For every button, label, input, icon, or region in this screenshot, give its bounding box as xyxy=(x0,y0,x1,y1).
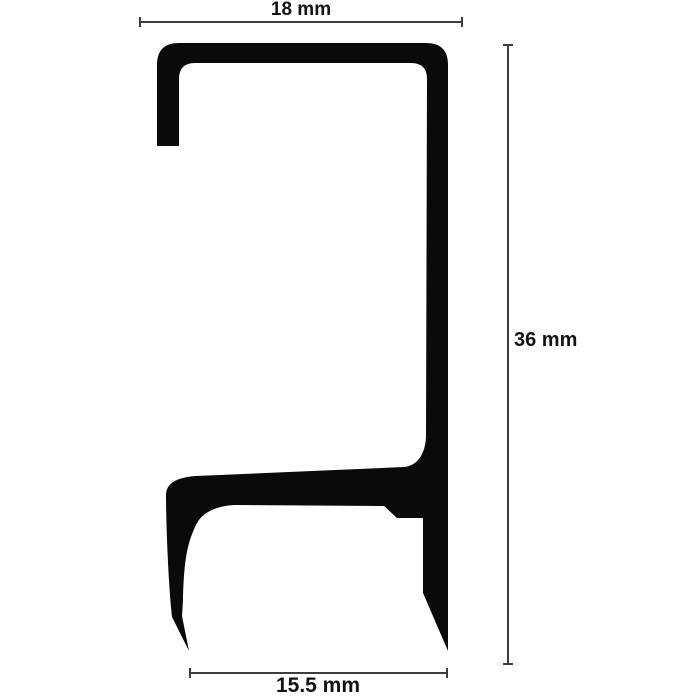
dimension-right-height xyxy=(503,45,513,664)
profile-diagram: 18 mm 36 mm 15.5 mm xyxy=(0,0,700,700)
dimension-label-top-width: 18 mm xyxy=(140,0,462,21)
profile-drawing xyxy=(0,0,700,700)
dimension-label-right-height: 36 mm xyxy=(514,329,577,352)
profile-shape xyxy=(157,43,448,651)
dimension-label-bottom-width: 15.5 mm xyxy=(189,674,447,698)
